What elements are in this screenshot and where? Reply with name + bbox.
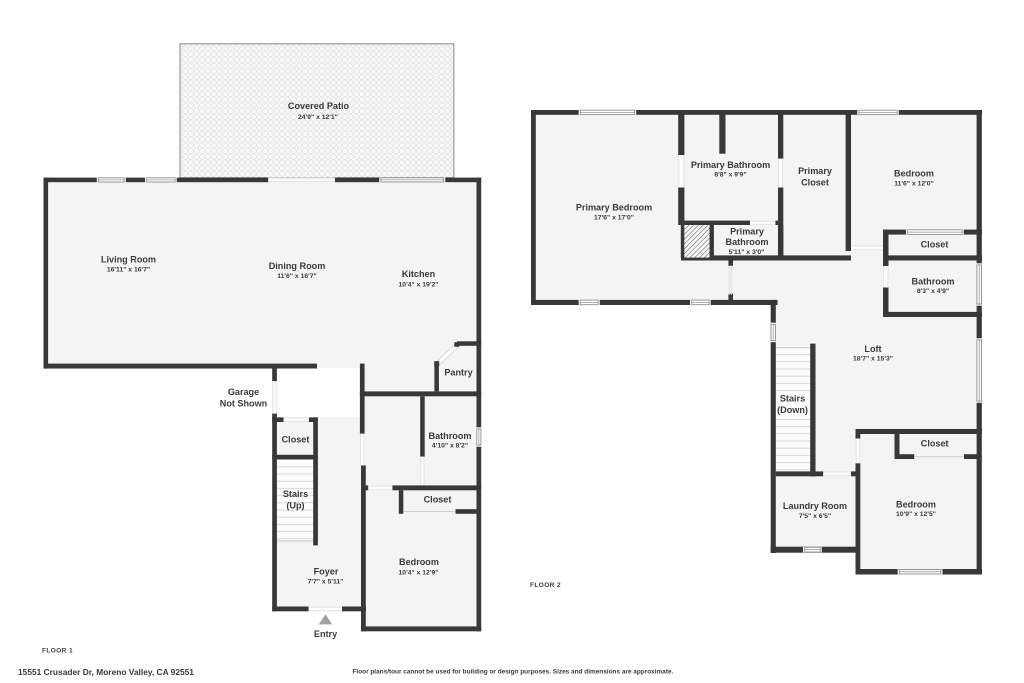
svg-text:Closet: Closet [921,439,949,449]
svg-text:Pantry: Pantry [444,368,473,378]
svg-text:10'4" x 12'9": 10'4" x 12'9" [399,570,439,577]
svg-text:Living Room: Living Room [101,255,156,265]
svg-text:16'11" x 16'7": 16'11" x 16'7" [107,267,150,274]
svg-text:10'9" x 12'5": 10'9" x 12'5" [896,511,936,518]
svg-text:Kitchen: Kitchen [402,269,435,279]
svg-text:Entry: Entry [314,629,338,639]
svg-text:Bathroom: Bathroom [726,237,769,247]
svg-text:(Down): (Down) [777,405,808,415]
svg-text:Laundry Room: Laundry Room [783,501,847,511]
svg-text:Closet: Closet [921,239,949,249]
svg-text:8'3" x 4'9": 8'3" x 4'9" [917,288,949,295]
svg-text:Dining Room: Dining Room [269,261,326,271]
svg-text:24'9" x 12'1": 24'9" x 12'1" [298,114,338,121]
svg-text:10'4" x 19'2": 10'4" x 19'2" [399,282,439,289]
svg-text:Primary: Primary [730,227,765,237]
svg-text:5'11" x 3'0": 5'11" x 3'0" [729,249,765,256]
svg-text:11'6" x 16'7": 11'6" x 16'7" [277,273,317,280]
svg-text:Stairs: Stairs [283,489,308,499]
svg-text:Bathroom: Bathroom [429,431,472,441]
svg-text:Loft: Loft [864,344,881,354]
svg-text:FLOOR 2: FLOOR 2 [530,582,561,589]
svg-text:17'6" x 17'0": 17'6" x 17'0" [594,215,634,222]
svg-text:Bathroom: Bathroom [912,277,955,287]
svg-text:Garage: Garage [228,387,259,397]
svg-text:Closet: Closet [282,435,310,445]
svg-text:Closet: Closet [801,178,829,188]
svg-text:Foyer: Foyer [314,567,339,577]
svg-text:11'6" x 12'0": 11'6" x 12'0" [894,181,934,188]
svg-text:Covered Patio: Covered Patio [288,101,350,111]
svg-text:18'7" x 15'3": 18'7" x 15'3" [853,356,893,363]
svg-text:Floor plans/tour cannot be use: Floor plans/tour cannot be used for buil… [353,669,674,676]
svg-text:Bedroom: Bedroom [896,500,936,510]
svg-text:7'5" x 6'5": 7'5" x 6'5" [799,513,831,520]
svg-text:(Up): (Up) [286,501,304,511]
svg-text:Closet: Closet [424,495,452,505]
svg-text:7'7" x 5'11": 7'7" x 5'11" [308,579,344,586]
svg-text:8'8" x 9'9": 8'8" x 9'9" [714,172,746,179]
svg-text:Bedroom: Bedroom [399,557,439,567]
svg-text:4'10" x 8'2": 4'10" x 8'2" [432,443,468,450]
svg-text:15551 Crusader Dr, Moreno Vall: 15551 Crusader Dr, Moreno Valley, CA 925… [18,667,194,677]
svg-text:FLOOR 1: FLOOR 1 [42,648,73,655]
svg-text:Primary Bathroom: Primary Bathroom [691,160,770,170]
svg-text:Primary: Primary [798,166,833,176]
svg-text:Bedroom: Bedroom [894,169,934,179]
svg-text:Primary Bedroom: Primary Bedroom [576,203,652,213]
svg-text:Stairs: Stairs [780,394,805,404]
svg-text:Not Shown: Not Shown [220,399,267,409]
